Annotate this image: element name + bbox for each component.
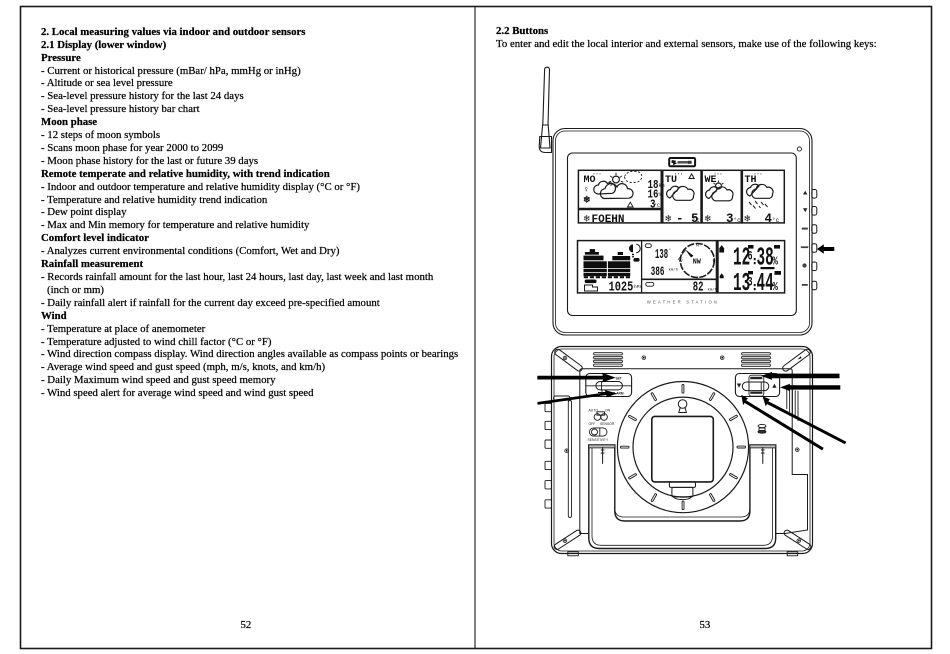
svg-text:♀: ♀ xyxy=(583,184,589,194)
svg-text:°: ° xyxy=(669,248,672,254)
svg-text:44: 44 xyxy=(757,270,774,299)
svg-text:3: 3 xyxy=(748,276,753,290)
svg-text:N: N xyxy=(696,242,699,247)
svg-text:386: 386 xyxy=(651,265,665,280)
svg-text:km/h: km/h xyxy=(708,288,718,293)
svg-text:%: % xyxy=(773,255,779,269)
svg-text:❄: ❄ xyxy=(583,214,591,224)
svg-text:SET: SET xyxy=(616,377,622,381)
svg-text:E: E xyxy=(713,258,716,263)
svg-text:%: % xyxy=(659,192,662,198)
svg-text:SENSITIVITY: SENSITIVITY xyxy=(588,438,609,442)
svg-text:hPa: hPa xyxy=(634,284,642,290)
svg-text:ON: ON xyxy=(605,409,611,413)
svg-text:FOEHN: FOEHN xyxy=(592,214,625,226)
svg-text:1025: 1025 xyxy=(609,279,634,295)
svg-text:°c: °c xyxy=(772,217,780,224)
svg-text:''': ''' xyxy=(674,173,683,179)
svg-text:W: W xyxy=(679,258,683,263)
svg-text:''': ''' xyxy=(754,173,763,179)
svg-text:%: % xyxy=(773,281,779,295)
svg-text:❄: ❄ xyxy=(665,214,673,224)
svg-text:6: 6 xyxy=(748,250,753,264)
svg-text:°c: °c xyxy=(693,217,701,224)
svg-text:❄: ❄ xyxy=(744,214,752,224)
svg-text:3: 3 xyxy=(726,212,734,226)
svg-text:138: 138 xyxy=(655,248,668,263)
svg-text:OFF: OFF xyxy=(589,422,596,426)
svg-text:82: 82 xyxy=(693,278,704,295)
svg-text:NW: NW xyxy=(693,258,702,266)
svg-text:km: km xyxy=(659,183,665,189)
svg-text:''': ''' xyxy=(714,173,723,179)
svg-text:°c: °c xyxy=(734,217,742,224)
svg-text:km/h: km/h xyxy=(669,268,679,273)
svg-text:WEATHER STATION: WEATHER STATION xyxy=(647,300,719,305)
svg-text:''': ''' xyxy=(593,173,602,179)
svg-text:❄: ❄ xyxy=(583,195,591,205)
svg-text:❄: ❄ xyxy=(704,214,712,224)
svg-text:SENSOR: SENSOR xyxy=(600,422,615,426)
